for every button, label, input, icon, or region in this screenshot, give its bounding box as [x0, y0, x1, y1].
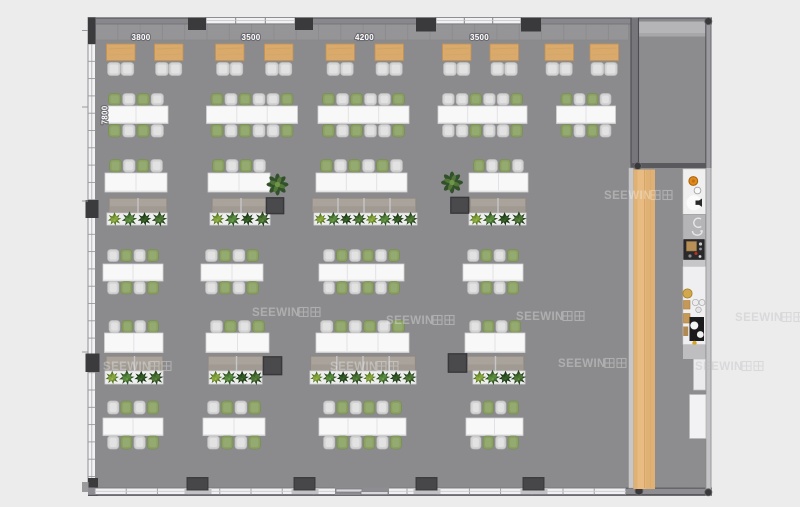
svg-text:SEEWIN: SEEWIN: [386, 315, 434, 327]
svg-text:SEEWIN: SEEWIN: [103, 361, 151, 373]
svg-text:3500: 3500: [242, 33, 261, 42]
svg-text:SEEWIN: SEEWIN: [558, 358, 606, 370]
svg-text:4200: 4200: [355, 33, 374, 42]
svg-text:SEEWIN: SEEWIN: [252, 307, 300, 319]
svg-text:SEEWIN: SEEWIN: [695, 361, 743, 373]
svg-text:SEEWIN: SEEWIN: [604, 190, 652, 202]
svg-text:SEEWIN: SEEWIN: [516, 311, 564, 323]
svg-text:3500: 3500: [470, 33, 489, 42]
svg-text:SEEWIN: SEEWIN: [330, 361, 378, 373]
svg-text:3800: 3800: [132, 33, 151, 42]
svg-text:7800: 7800: [101, 105, 110, 124]
svg-text:SEEWIN: SEEWIN: [735, 312, 783, 324]
